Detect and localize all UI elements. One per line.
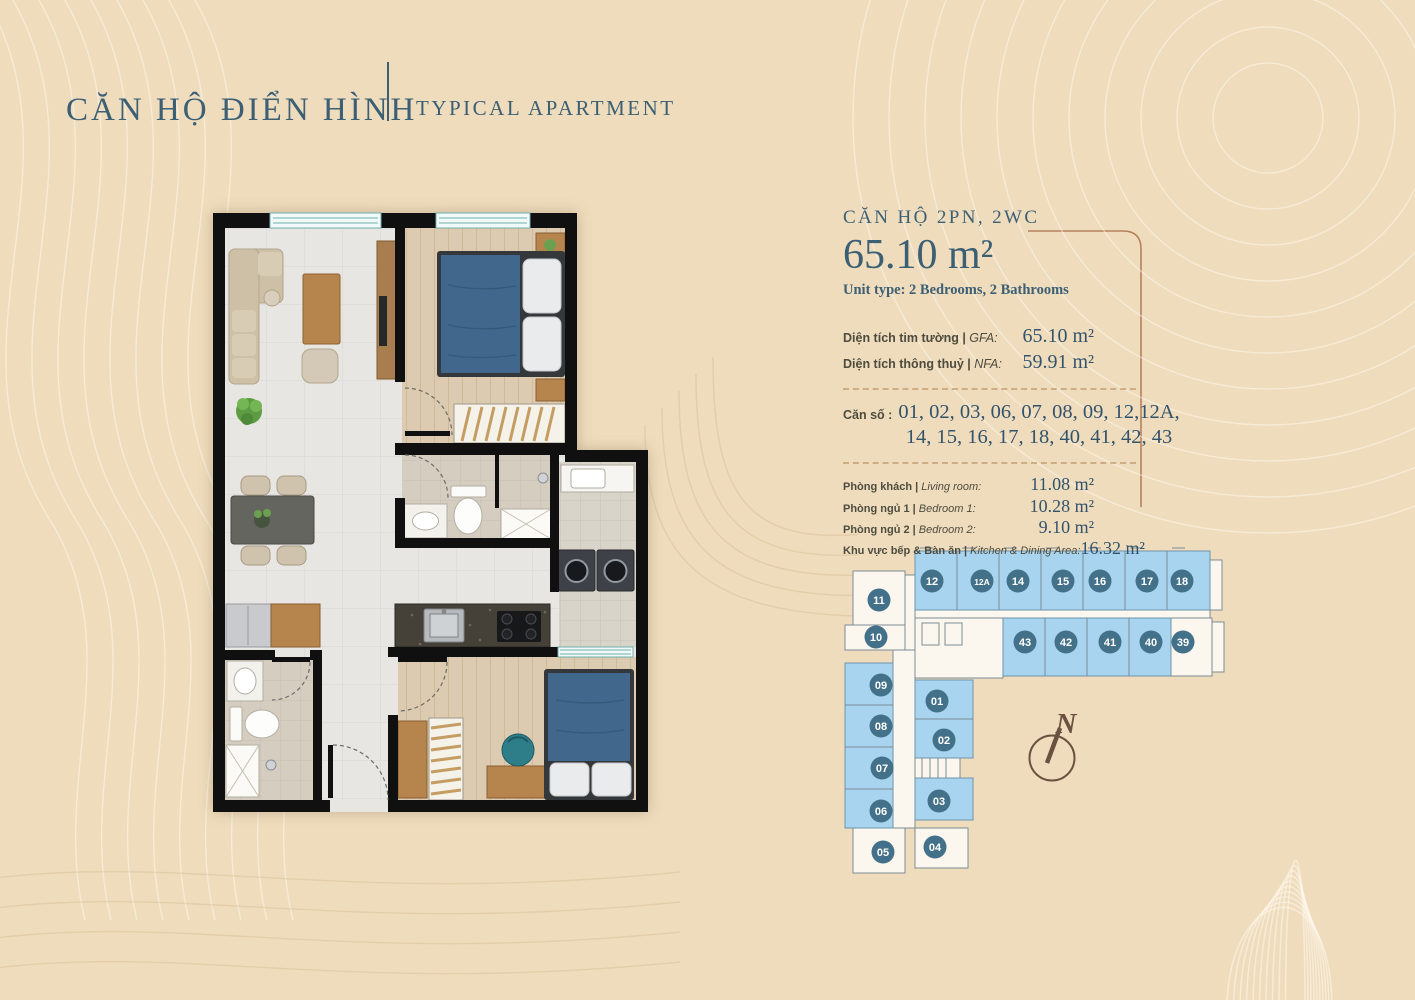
nightstand-plant — [544, 239, 556, 251]
unit-marker-label: 07 — [876, 763, 888, 775]
unit-numbers-line1: 01, 02, 03, 06, 07, 08, 09, 12,12A, — [898, 400, 1179, 425]
key-plan: 1212A14151617184342414039111009080706050… — [843, 546, 1233, 880]
side-table — [264, 290, 280, 306]
bedroom2-desk — [487, 766, 547, 798]
unit-marker-label: 03 — [933, 796, 945, 808]
unit-marker-label: 11 — [873, 595, 885, 607]
contour-line — [679, 391, 858, 575]
unit-marker-label: 12A — [974, 577, 990, 587]
contour-line — [0, 902, 680, 914]
contour-line — [90, 0, 217, 920]
room-label: Phòng khách | Living room: — [843, 480, 981, 494]
contour-line — [0, 872, 680, 884]
contour-line — [64, 0, 191, 920]
metric-row: Diện tích thông thuỷ | NFA:59.91 m² — [843, 349, 1136, 375]
room-row: Khu vực bếp & Bàn ăn | Kitchen & Dining … — [843, 538, 1136, 559]
metric-label: Diện tích tim tường | GFA: — [843, 330, 998, 347]
contour-line — [696, 374, 858, 555]
room-label: Phòng ngủ 2 | Bedroom 2: — [843, 523, 976, 537]
room-row: Phòng khách | Living room:11.08 m² — [843, 474, 1136, 495]
building-outline — [845, 548, 1224, 873]
contour-circle — [1141, 0, 1395, 245]
unit-heading: CĂN HỘ 2PN, 2WC — [843, 207, 1136, 230]
room-areas-list: Phòng khách | Living room:11.08 m²Phòng … — [843, 474, 1136, 559]
room-value: 11.08 m² — [1030, 475, 1136, 494]
contour-line — [713, 357, 858, 535]
room-label: Khu vực bếp & Bàn ăn | Kitchen & Dining … — [843, 544, 1080, 558]
contour-circle — [1105, 0, 1415, 281]
bedroom1-wardrobe — [454, 404, 565, 443]
metric-row: Diện tích tim tường | GFA:65.10 m² — [843, 323, 1136, 349]
unit-marker-label: 43 — [1019, 637, 1031, 649]
unit-marker-label: 08 — [875, 721, 887, 733]
contour-line — [0, 0, 113, 920]
tv-console — [377, 241, 396, 379]
unit-marker-label: 02 — [938, 735, 950, 747]
contour-circle — [1177, 27, 1359, 209]
unit-numbers-label: Căn số : — [843, 400, 892, 449]
metric-value: 65.10 m² — [1022, 325, 1136, 347]
unit-marker-label: 12 — [926, 576, 938, 588]
apartment-floorplan — [210, 210, 652, 816]
kitchen-cabinet — [271, 604, 320, 647]
unit-numbers: Căn số : 01, 02, 03, 06, 07, 08, 09, 12,… — [843, 400, 1136, 449]
unit-marker-label: 16 — [1094, 576, 1106, 588]
north-arrow: N — [1030, 708, 1078, 781]
unit-marker-label: 40 — [1145, 637, 1157, 649]
bedroom1-bed — [437, 251, 565, 377]
unit-marker-label: 01 — [931, 696, 943, 708]
dashed-divider — [843, 462, 1136, 464]
title-divider — [387, 62, 389, 121]
unit-numbers-line2: 14, 15, 16, 17, 18, 40, 41, 42, 43 — [898, 425, 1179, 450]
dining-table — [231, 496, 314, 544]
bedroom2-bed — [544, 669, 634, 800]
unit-area: 65.10 m² — [843, 233, 1136, 277]
contour-line — [645, 425, 858, 616]
page-title-vietnamese: CĂN HỘ ĐIỂN HÌNH — [66, 92, 417, 128]
unit-marker-label: 39 — [1177, 637, 1189, 649]
bedroom2-wardrobe — [429, 718, 463, 800]
room-value: 9.10 m² — [1039, 518, 1136, 537]
unit-marker-label: 41 — [1104, 637, 1116, 649]
laundry-counter — [561, 465, 634, 492]
kitchen-sink — [424, 609, 464, 642]
room-row: Phòng ngủ 1 | Bedroom 1:10.28 m² — [843, 496, 1136, 517]
unit-info-panel: CĂN HỘ 2PN, 2WC 65.10 m² Unit type: 2 Be… — [843, 207, 1136, 560]
bedroom2-chair — [502, 734, 534, 766]
cooktop — [497, 611, 541, 642]
unit-marker-label: 15 — [1057, 576, 1069, 588]
fridge — [226, 604, 271, 647]
contour-line — [12, 0, 139, 920]
metric-value: 59.91 m² — [1022, 351, 1136, 373]
coffee-table — [303, 274, 340, 344]
unit-marker-label: 09 — [875, 680, 887, 692]
bedroom2-cabinet — [398, 721, 427, 798]
compass-circle — [1030, 736, 1075, 781]
contour-circle — [1213, 63, 1323, 173]
contour-line — [38, 0, 165, 920]
ottoman — [302, 349, 338, 383]
unit-marker-label: 14 — [1012, 576, 1025, 588]
unit-marker-label: 17 — [1141, 576, 1153, 588]
dashed-divider — [843, 388, 1136, 390]
nightstand-2 — [536, 379, 565, 401]
page-title-english: TYPICAL APARTMENT — [416, 97, 676, 120]
unit-marker-label: 06 — [875, 806, 887, 818]
contour-line — [0, 932, 680, 944]
room-row: Phòng ngủ 2 | Bedroom 2:9.10 m² — [843, 517, 1136, 538]
unit-marker-label: 04 — [929, 842, 942, 854]
room-value: 10.28 m² — [1030, 497, 1136, 516]
contour-line — [0, 962, 680, 974]
room-value: 16.32 m² — [1080, 539, 1186, 558]
metric-label: Diện tích thông thuỷ | NFA: — [843, 356, 1002, 373]
metrics-list: Diện tích tim tường | GFA:65.10 m²Diện t… — [843, 323, 1136, 375]
unit-marker-label: 42 — [1060, 637, 1072, 649]
unit-type: Unit type: 2 Bedrooms, 2 Bathrooms — [843, 282, 1136, 299]
room-label: Phòng ngủ 1 | Bedroom 1: — [843, 502, 976, 516]
unit-marker-label: 05 — [877, 847, 889, 859]
unit-marker-label: 18 — [1176, 576, 1188, 588]
north-label: N — [1055, 708, 1078, 740]
unit-marker-label: 10 — [870, 632, 882, 644]
unit-numbers-values: 01, 02, 03, 06, 07, 08, 09, 12,12A, 14, … — [898, 400, 1179, 449]
